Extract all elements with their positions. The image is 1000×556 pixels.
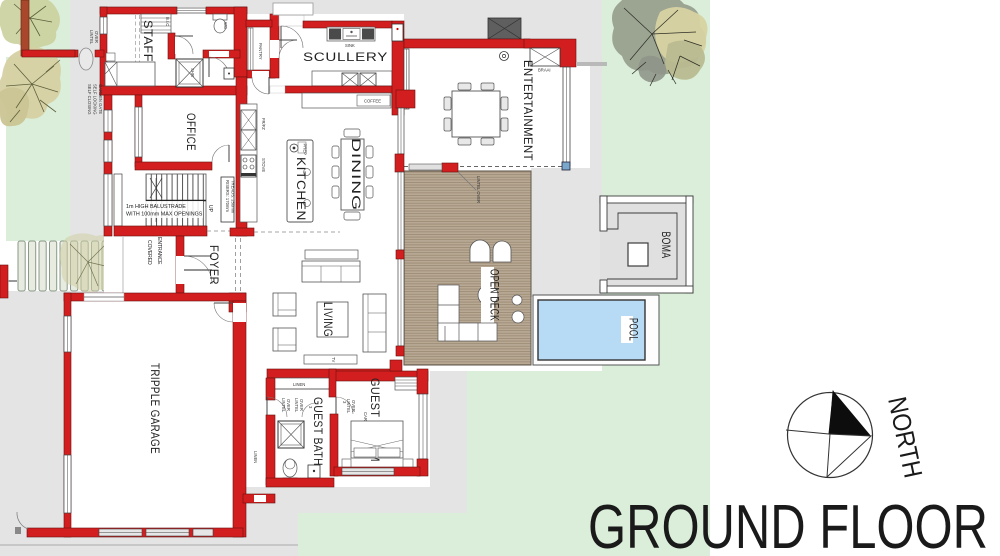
svg-text:ENTERTAINMENT: ENTERTAINMENT: [521, 60, 533, 161]
svg-text:TRIPPLE GARAGE: TRIPPLE GARAGE: [148, 363, 160, 454]
svg-text:WC: WC: [223, 22, 228, 29]
svg-text:TREADS: 250mm: TREADS: 250mm: [231, 180, 236, 214]
svg-text:LINTEL: LINTEL: [346, 399, 351, 414]
svg-text:OPEN DECK: OPEN DECK: [488, 269, 500, 321]
svg-text:GARDEN GATE: GARDEN GATE: [98, 84, 103, 114]
svg-text:SELF CLOSING: SELF CLOSING: [87, 84, 92, 114]
svg-text:LIVING: LIVING: [321, 302, 333, 337]
svg-text:DINING: DINING: [349, 138, 361, 211]
svg-text:KITCHEN: KITCHEN: [294, 157, 306, 221]
svg-text:RISERS: 170mm: RISERS: 170mm: [225, 180, 230, 212]
svg-text:COVERED: COVERED: [146, 240, 152, 265]
svg-text:STAFF: STAFF: [141, 20, 153, 62]
svg-text:SCULLERY: SCULLERY: [303, 52, 388, 64]
svg-text:PANTRY: PANTRY: [258, 43, 263, 60]
svg-text:OFFICE: OFFICE: [184, 113, 196, 151]
svg-text:OVER: OVER: [286, 399, 291, 411]
svg-text:SHR: SHR: [190, 68, 195, 77]
svg-text:GROUND FLOOR: GROUND FLOOR: [588, 493, 988, 556]
svg-text:LINTEL: LINTEL: [294, 398, 299, 413]
svg-text:UP: UP: [207, 205, 213, 213]
svg-text:POOL: POOL: [627, 318, 639, 341]
svg-text:LINTEL OVER: LINTEL OVER: [476, 176, 481, 203]
svg-text:STOVE: STOVE: [261, 158, 266, 172]
svg-text:BOMA: BOMA: [659, 232, 671, 259]
svg-text:OVER: OVER: [299, 399, 304, 411]
svg-text:1m HIGH BALUSTRADE: 1m HIGH BALUSTRADE: [126, 204, 186, 210]
svg-text:LINTEL: LINTEL: [89, 30, 94, 45]
svg-text:LINTEL: LINTEL: [281, 398, 286, 413]
svg-text:FR/FZ: FR/FZ: [261, 118, 266, 130]
svg-text:FOYER: FOYER: [207, 245, 219, 285]
svg-text:OVER: OVER: [94, 31, 99, 43]
svg-text:BRAAI: BRAAI: [538, 68, 551, 73]
svg-text:COFFEE: COFFEE: [364, 99, 381, 104]
svg-text:SINK: SINK: [345, 43, 355, 48]
svg-text:GUEST BATH: GUEST BATH: [311, 397, 323, 466]
svg-text:B.I.C: B.I.C: [165, 17, 170, 26]
svg-text:PREP: PREP: [303, 144, 308, 156]
svg-text:WITH 100mm MAX OPENINGS: WITH 100mm MAX OPENINGS: [126, 212, 203, 218]
svg-text:ENTRANCE: ENTRANCE: [156, 237, 162, 265]
svg-text:LINEN: LINEN: [253, 451, 258, 463]
svg-text:LINEN: LINEN: [293, 382, 305, 387]
svg-text:SELF LOCKING: SELF LOCKING: [93, 84, 98, 114]
svg-text:OVER: OVER: [351, 400, 356, 412]
svg-text:TV: TV: [331, 357, 336, 363]
